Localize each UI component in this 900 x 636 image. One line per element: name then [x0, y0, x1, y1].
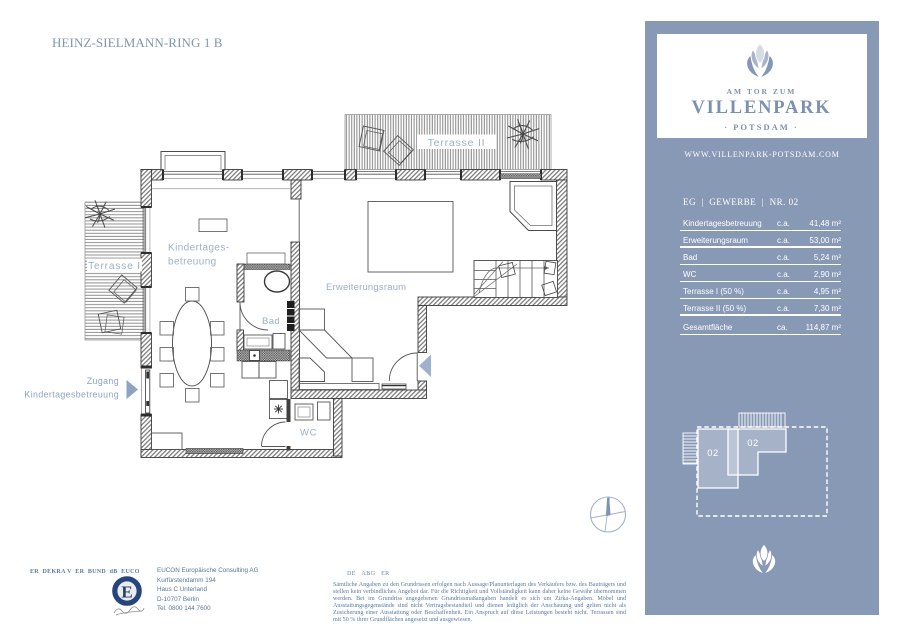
svg-text:Kindertagesbetreuung: Kindertagesbetreuung	[24, 390, 119, 400]
svg-text:Terrasse II: Terrasse II	[428, 137, 486, 149]
svg-text:02: 02	[747, 438, 759, 449]
svg-text:E: E	[121, 583, 132, 602]
svg-text:betreuung: betreuung	[168, 257, 217, 268]
svg-text:Bad: Bad	[262, 316, 280, 327]
svg-text:Zugang: Zugang	[87, 376, 119, 386]
svg-text:02: 02	[707, 448, 719, 459]
svg-text:Terrasse I: Terrasse I	[88, 261, 141, 272]
svg-text:Kindertages-: Kindertages-	[168, 243, 230, 254]
svg-text:WC: WC	[300, 428, 317, 439]
svg-text:Erweiterungsraum: Erweiterungsraum	[326, 282, 406, 293]
